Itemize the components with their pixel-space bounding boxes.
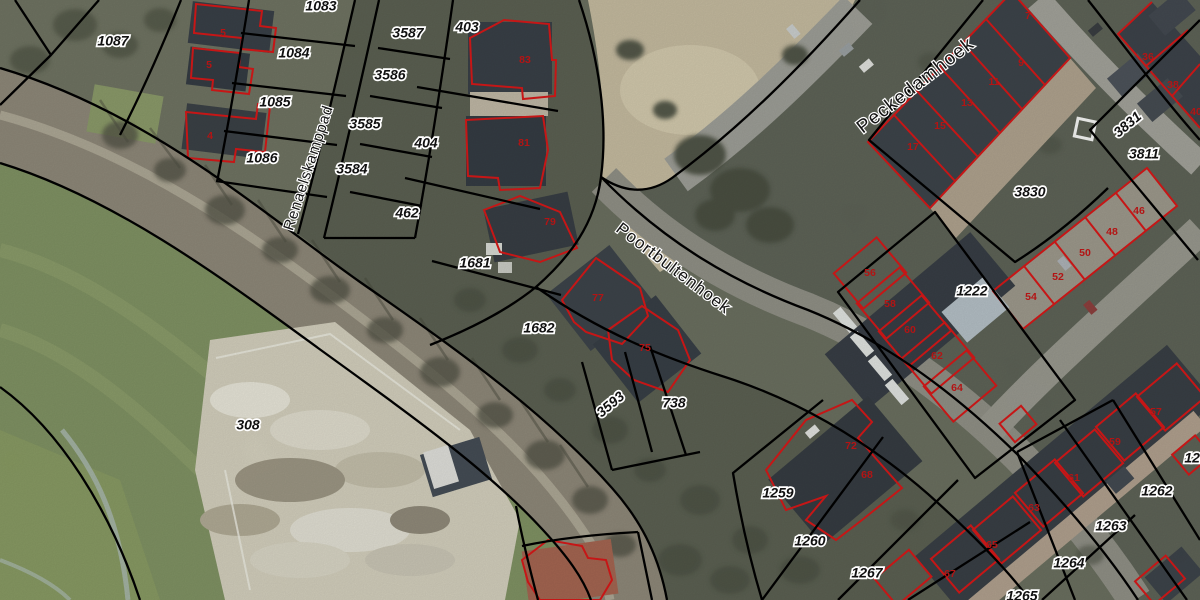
parcel-number-label: 1260 — [794, 533, 825, 549]
parcel-number-label: 404 — [413, 135, 438, 151]
parcel-number-label: 3586 — [374, 67, 405, 83]
house-number-label: 50 — [1079, 247, 1091, 259]
house-number-label: 5 — [206, 59, 212, 71]
house-number-label: 54 — [1025, 291, 1037, 303]
parcel-number-label: 1085 — [259, 94, 290, 110]
house-number-label: 5 — [220, 27, 226, 39]
house-number-label: 81 — [518, 137, 530, 149]
house-number-label: 83 — [519, 54, 531, 66]
parcel-number-label: 1083 — [305, 0, 336, 14]
house-number-label: 11 — [988, 76, 999, 88]
house-number-label: 58 — [884, 298, 896, 310]
house-number-label: 36 — [1142, 51, 1154, 63]
house-number-label: 68 — [861, 469, 873, 481]
parcel-number-label: 1682 — [523, 320, 554, 336]
cadastral-map[interactable]: PeckedamhoekPoortbultenhoekRenaelskamppa… — [0, 0, 1200, 600]
house-number-label: 38 — [1167, 79, 1179, 91]
house-number-label: 59 — [1109, 436, 1121, 448]
parcel-number-label: 1681 — [459, 255, 490, 271]
house-number-label: 72 — [845, 440, 857, 452]
house-number-label: 56 — [864, 267, 876, 279]
house-number-label: 63 — [1028, 502, 1040, 514]
house-number-label: 17 — [907, 141, 919, 153]
house-number-label: 67 — [944, 568, 956, 580]
parcel-number-label: 738 — [662, 395, 686, 411]
house-number-label: 62 — [931, 350, 943, 362]
parcel-number-label: 3830 — [1014, 184, 1045, 200]
parcel-number-label: 1222 — [956, 283, 987, 299]
parcel-number-label: 1259 — [762, 485, 793, 501]
parcel-number-label: 1264 — [1053, 555, 1084, 571]
house-number-label: 57 — [1150, 406, 1162, 418]
parcel-number-label: 1263 — [1095, 518, 1126, 534]
cadastral-map-viewport[interactable]: PeckedamhoekPoortbultenhoekRenaelskamppa… — [0, 0, 1200, 600]
parcel-number-label: 1087 — [97, 33, 129, 49]
house-number-label: 61 — [1068, 472, 1080, 484]
parcel-number-label: 3587 — [392, 25, 424, 41]
house-number-label: 9 — [1018, 57, 1024, 69]
parcel-number-label: 1267 — [851, 565, 883, 581]
parcel-number-label: 1084 — [278, 45, 309, 61]
parcel-number-label: 1086 — [246, 150, 277, 166]
parcel-number-label: 403 — [454, 19, 479, 35]
house-number-label: 60 — [904, 324, 916, 336]
house-number-label: 77 — [592, 292, 604, 304]
house-number-label: 46 — [1133, 205, 1145, 217]
house-number-label: 48 — [1106, 226, 1118, 238]
parcel-number-label: 3584 — [336, 161, 367, 177]
house-number-label: 4 — [207, 130, 213, 142]
parcel-number-label: 126 — [1184, 450, 1200, 466]
parcel-number-label: 1265 — [1006, 588, 1037, 600]
house-number-label: 75 — [639, 342, 651, 354]
house-number-label: 40 — [1190, 106, 1200, 118]
house-number-label: 64 — [951, 382, 963, 394]
house-number-label: 52 — [1052, 271, 1064, 283]
house-number-label: 13 — [961, 97, 973, 109]
parcel-number-label: 308 — [236, 417, 260, 433]
house-number-label: 7 — [1025, 10, 1031, 22]
house-number-label: 15 — [934, 120, 946, 132]
parcel-number-label: 462 — [394, 205, 419, 221]
parcel-number-label: 1262 — [1141, 483, 1172, 499]
parcel-number-label: 3585 — [349, 116, 380, 132]
parcel-number-label: 3811 — [1129, 146, 1159, 162]
house-number-label: 79 — [544, 216, 556, 228]
house-number-label: 65 — [986, 539, 998, 551]
